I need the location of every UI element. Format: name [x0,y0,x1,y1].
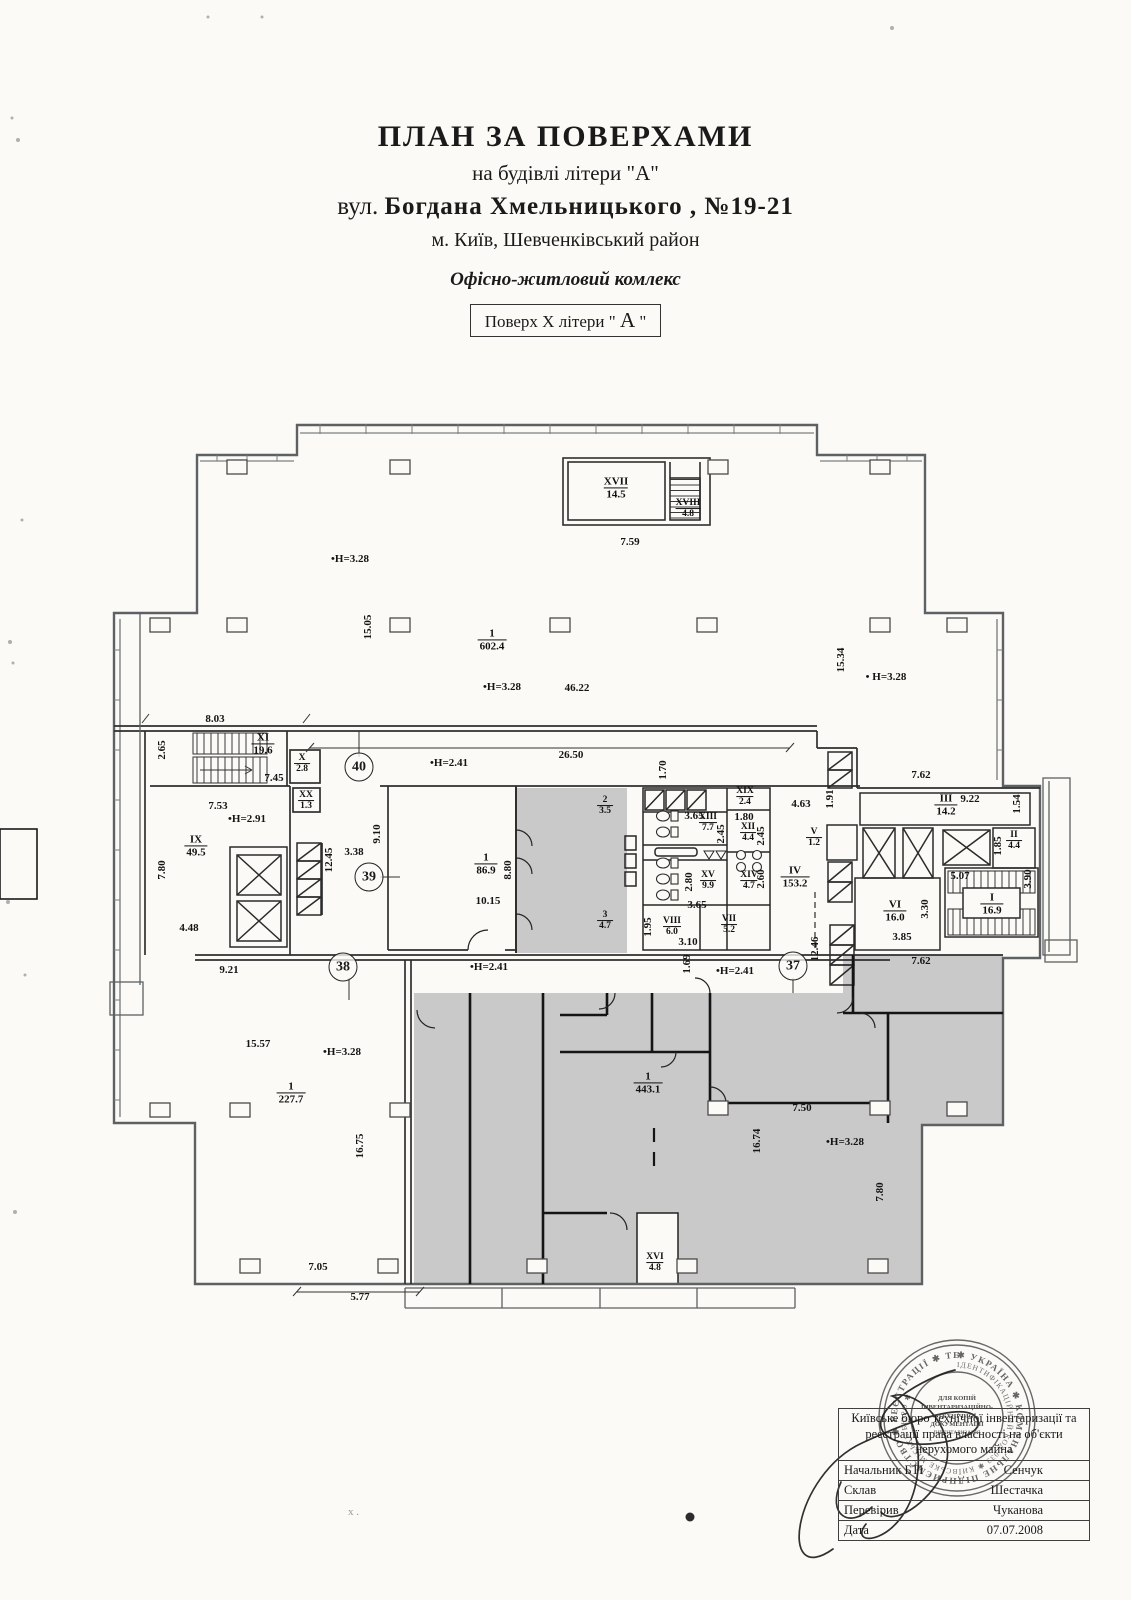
table-row: ПеревіривЧуканова [839,1500,1090,1520]
table-row: Начальник БТІСенчук [839,1460,1090,1480]
floor-box-letter: А [620,308,635,332]
page-subtitle: на будівлі літери "А" [0,161,1131,186]
cert-header: Київське бюро технічної інвентаризації т… [839,1409,1090,1461]
street-name: Богдана Хмельницького , №19-21 [385,193,794,220]
sanitary-block [625,788,770,950]
stair-xi [193,733,267,783]
row-label: Дата [839,1520,953,1540]
table-row: Дата07.07.2008 [839,1520,1090,1540]
title-block: ПЛАН ЗА ПОВЕРХАМИ на будівлі літери "А" … [0,120,1131,337]
city-line: м. Київ, Шевченківський район [0,229,1131,252]
row-value: Шестачка [953,1480,1090,1500]
row-value: 07.07.2008 [953,1520,1090,1540]
street-address: вул. Богдана Хмельницького , №19-21 [0,193,1131,221]
row-value: Сенчук [953,1460,1090,1480]
left-elevators [230,843,321,947]
ink-dot [686,1513,695,1522]
row-label: Перевірив [839,1500,953,1520]
row-value: Чуканова [953,1500,1090,1520]
table-row: СклавШестачка [839,1480,1090,1500]
pencil-mark: х . [348,1506,359,1518]
certification-table: Київське бюро технічної інвентаризації т… [838,1408,1090,1541]
floor-box-prefix: Поверх X літери " [485,312,620,331]
complex-line: Офісно-житловий комлекс [0,269,1131,291]
page-title: ПЛАН ЗА ПОВЕРХАМИ [0,120,1131,154]
scanned-floorplan-page: ПЛАН ЗА ПОВЕРХАМИ на будівлі літери "А" … [0,0,1131,1600]
row-label: Начальник БТІ [839,1460,953,1480]
floor-box: Поверх X літери " А " [470,304,662,337]
floor-box-suffix: " [635,312,646,331]
vestibule-xvii [563,458,710,525]
row-label: Склав [839,1480,953,1500]
street-prefix: вул. [337,193,384,220]
